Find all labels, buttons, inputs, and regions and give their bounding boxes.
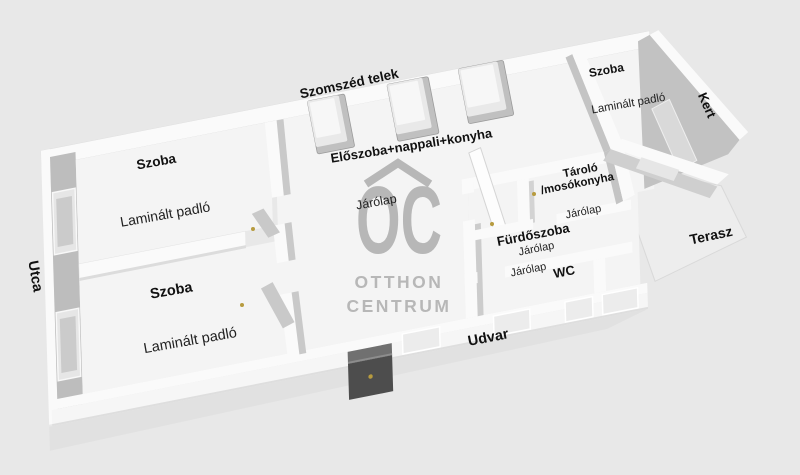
watermark-line2: CENTRUM [347, 296, 452, 316]
west-window-pane [56, 196, 73, 247]
door-handle-dot [532, 192, 536, 196]
west-window-pane [60, 316, 77, 373]
door-handle-dot [240, 303, 244, 307]
door-handle-dot [251, 227, 255, 231]
floorplan-canvas: OC OTTHON CENTRUM Szomszéd telek Szoba L… [0, 0, 800, 475]
living-utility-wall [462, 177, 474, 194]
watermark-oc: OC [356, 167, 442, 274]
storage-west-wall [517, 178, 530, 225]
wc-east-wall [593, 258, 606, 293]
floorplan-svg: OC OTTHON CENTRUM Szomszéd telek Szoba L… [0, 0, 800, 475]
door-handle-dot [490, 222, 494, 226]
watermark-line1: OTTHON [355, 272, 444, 292]
